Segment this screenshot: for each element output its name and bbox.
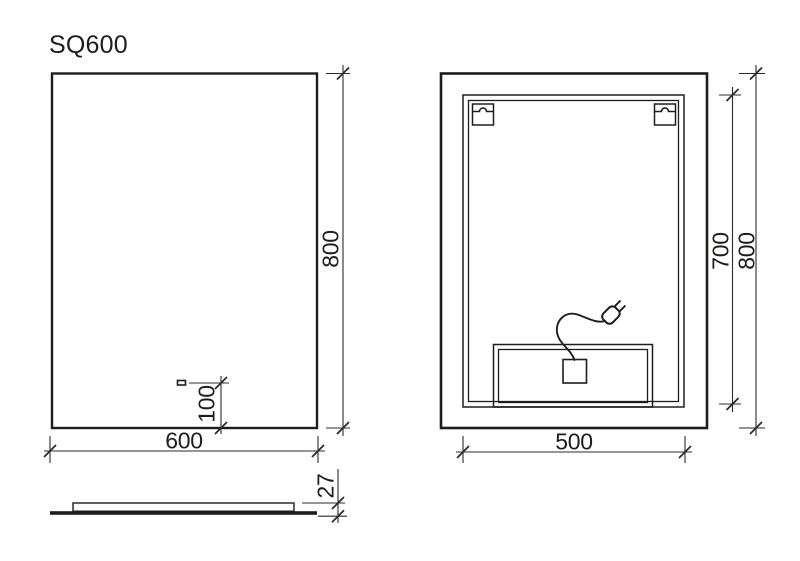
- touch-sensor-icon: [178, 381, 186, 386]
- dim-label-rear-backbox-width: 500: [555, 431, 592, 454]
- backbox-profile: [73, 503, 294, 511]
- hanger-hook-slot: [473, 108, 494, 112]
- technical-drawing: [0, 0, 800, 561]
- product-title: SQ600: [49, 33, 128, 58]
- hanger-bracket-icon: [655, 104, 676, 125]
- hanger-bracket-left: [473, 104, 494, 125]
- power-connection-box: [563, 360, 587, 384]
- power-cord-icon: [557, 314, 605, 360]
- dim-label-sensor-offset: 100: [196, 385, 219, 422]
- drawing-sheet: SQ600 800 600 100 27 700 800 500: [0, 0, 800, 561]
- power-plug-icon: [600, 298, 627, 325]
- dim-label-rear-height: 800: [736, 232, 759, 269]
- dim-label-front-width: 600: [165, 430, 202, 453]
- dim-label-rear-backbox-height: 700: [710, 232, 733, 269]
- mirror-front-outline: [52, 74, 317, 429]
- hanger-bracket-icon: [473, 104, 494, 125]
- hanger-bracket-right: [655, 104, 676, 125]
- dim-label-thickness: 27: [315, 474, 338, 499]
- side-view: [50, 469, 347, 523]
- dim-label-front-height: 800: [320, 230, 343, 267]
- hanger-hook-slot: [655, 108, 676, 112]
